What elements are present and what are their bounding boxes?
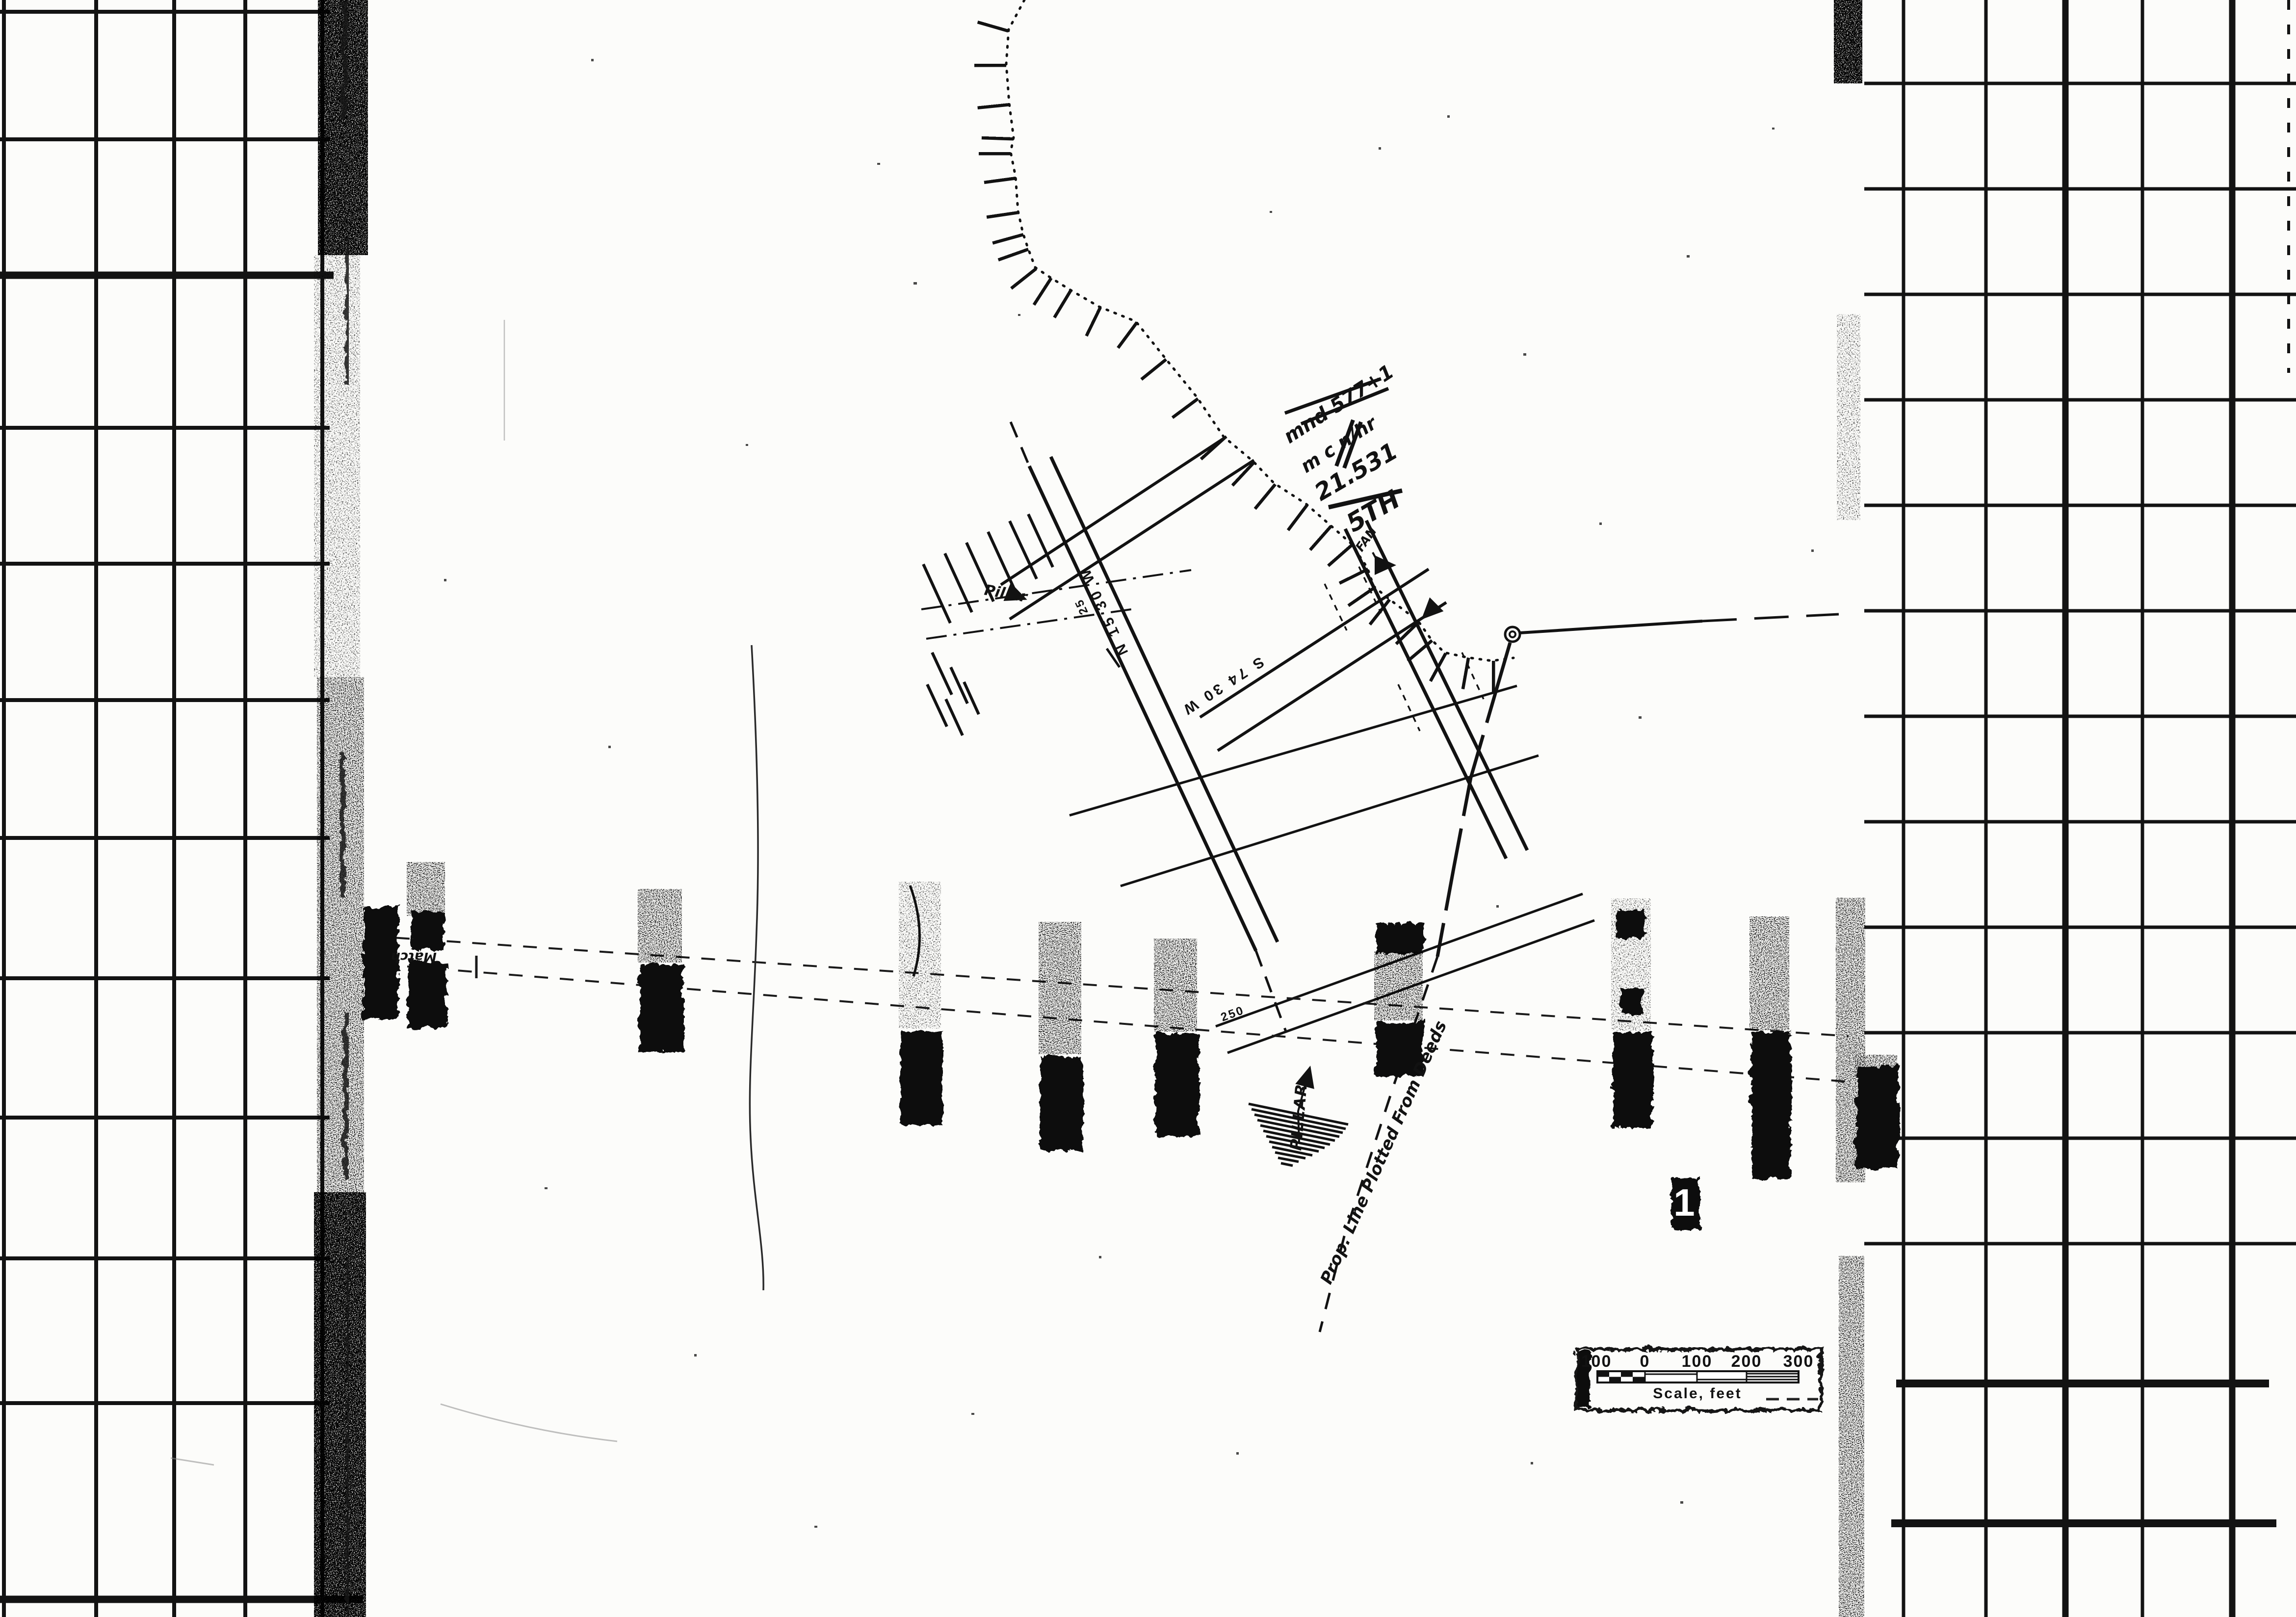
strip-7-knot-b (1619, 986, 1641, 1013)
right-grid-verticals-heavy (2065, 0, 2232, 1617)
hatch-areas (923, 514, 1348, 1166)
left-grid-verticals (4, 0, 322, 1617)
strip-2-dense (407, 961, 445, 1027)
dust-specks (444, 59, 1814, 1528)
scale-number-100L: 100 (1581, 1352, 1612, 1371)
left-torn-speckle-bottom (314, 1192, 366, 1617)
match-label: Match (391, 949, 437, 965)
strip-9-dense (1855, 1065, 1897, 1168)
strip-5-dense (1154, 1032, 1197, 1135)
right-grid-verticals (1904, 0, 2142, 1617)
dash-dot-lines (921, 570, 1191, 639)
station-25-label: 25 (1072, 597, 1091, 617)
strip-8-dense (1749, 1030, 1789, 1177)
fill-hatch-upper (923, 514, 1053, 735)
scanned-map-sheet: N 15 30 W S 74 30 W 25 250 Prop. Line Pl… (0, 0, 2296, 1617)
scale-number-300: 300 (1783, 1352, 1814, 1371)
figure-number: 1 (1673, 1181, 1695, 1224)
strip-2b-dense (638, 963, 682, 1050)
annotations: N 15 30 W S 74 30 W 25 250 Prop. Line Pl… (391, 361, 1451, 1287)
map-drawing: N 15 30 W S 74 30 W 25 250 Prop. Line Pl… (0, 0, 2296, 1617)
right-torn-speckle-top (1834, 0, 1862, 83)
pencil-curve-bottom (171, 1404, 617, 1465)
scale-checker-cell (1609, 1377, 1621, 1383)
strip-6-top (1374, 921, 1423, 952)
survey-point-outer (1505, 627, 1520, 642)
scale-number-100R: 100 (1682, 1352, 1713, 1371)
right-grid (1864, 0, 2296, 1617)
strip-4-dense (1039, 1055, 1081, 1149)
scale-bar-group: 100 0 100 200 300 Scale, feet (1576, 1347, 1819, 1409)
shoreline (1006, 0, 1513, 661)
right-grid-heavy-lines (1891, 1383, 2276, 1523)
vertical-crease (750, 645, 763, 1290)
scale-checker-cell (1633, 1377, 1645, 1383)
scale-checker-cell (1597, 1371, 1609, 1377)
strip-5-speckle (1154, 939, 1197, 1032)
right-torn-speckle-bottom (1839, 1256, 1864, 1617)
strip-2-speckle (407, 862, 445, 916)
strip-3-dense (899, 1029, 941, 1123)
strip-7-knot-a (1614, 908, 1644, 937)
scale-numbers: 100 0 100 200 300 (1581, 1352, 1814, 1371)
scale-bar (1597, 1371, 1799, 1382)
bearing-cross-street-label: S 74 30 W (1178, 653, 1267, 719)
photo-strips (362, 862, 1897, 1177)
strip-2b-speckle (638, 889, 682, 963)
scale-caption: Scale, feet (1653, 1385, 1742, 1402)
shoreline-group (1006, 0, 1513, 661)
strip-4-speckle (1039, 922, 1081, 1054)
figure-number-group: 1 (1670, 1176, 1698, 1227)
street-network (921, 422, 1594, 1053)
strip-7-dense (1611, 1030, 1651, 1126)
pillar-handwritten-label: Pillar (983, 581, 1030, 606)
line-to-right-edge-dashed (1702, 614, 1839, 621)
scale-checker-cell (1621, 1371, 1633, 1377)
survey-point-inner (1510, 631, 1515, 637)
scale-number-0: 0 (1640, 1352, 1650, 1371)
strip-2-knots (410, 910, 442, 948)
left-grid (0, 0, 363, 1617)
right-torn-speckle-mid (1837, 314, 1860, 520)
strip-3-speckle (899, 882, 941, 1029)
scale-number-200: 200 (1731, 1352, 1762, 1371)
left-grid-horizontals (0, 12, 330, 1403)
strip-6-speckle (1374, 952, 1423, 1020)
left-torn-speckle-mid (314, 255, 360, 677)
left-grid-heavy-lines (0, 275, 363, 1599)
strip-8-speckle (1749, 916, 1789, 1030)
line-to-right-edge (1520, 621, 1702, 633)
